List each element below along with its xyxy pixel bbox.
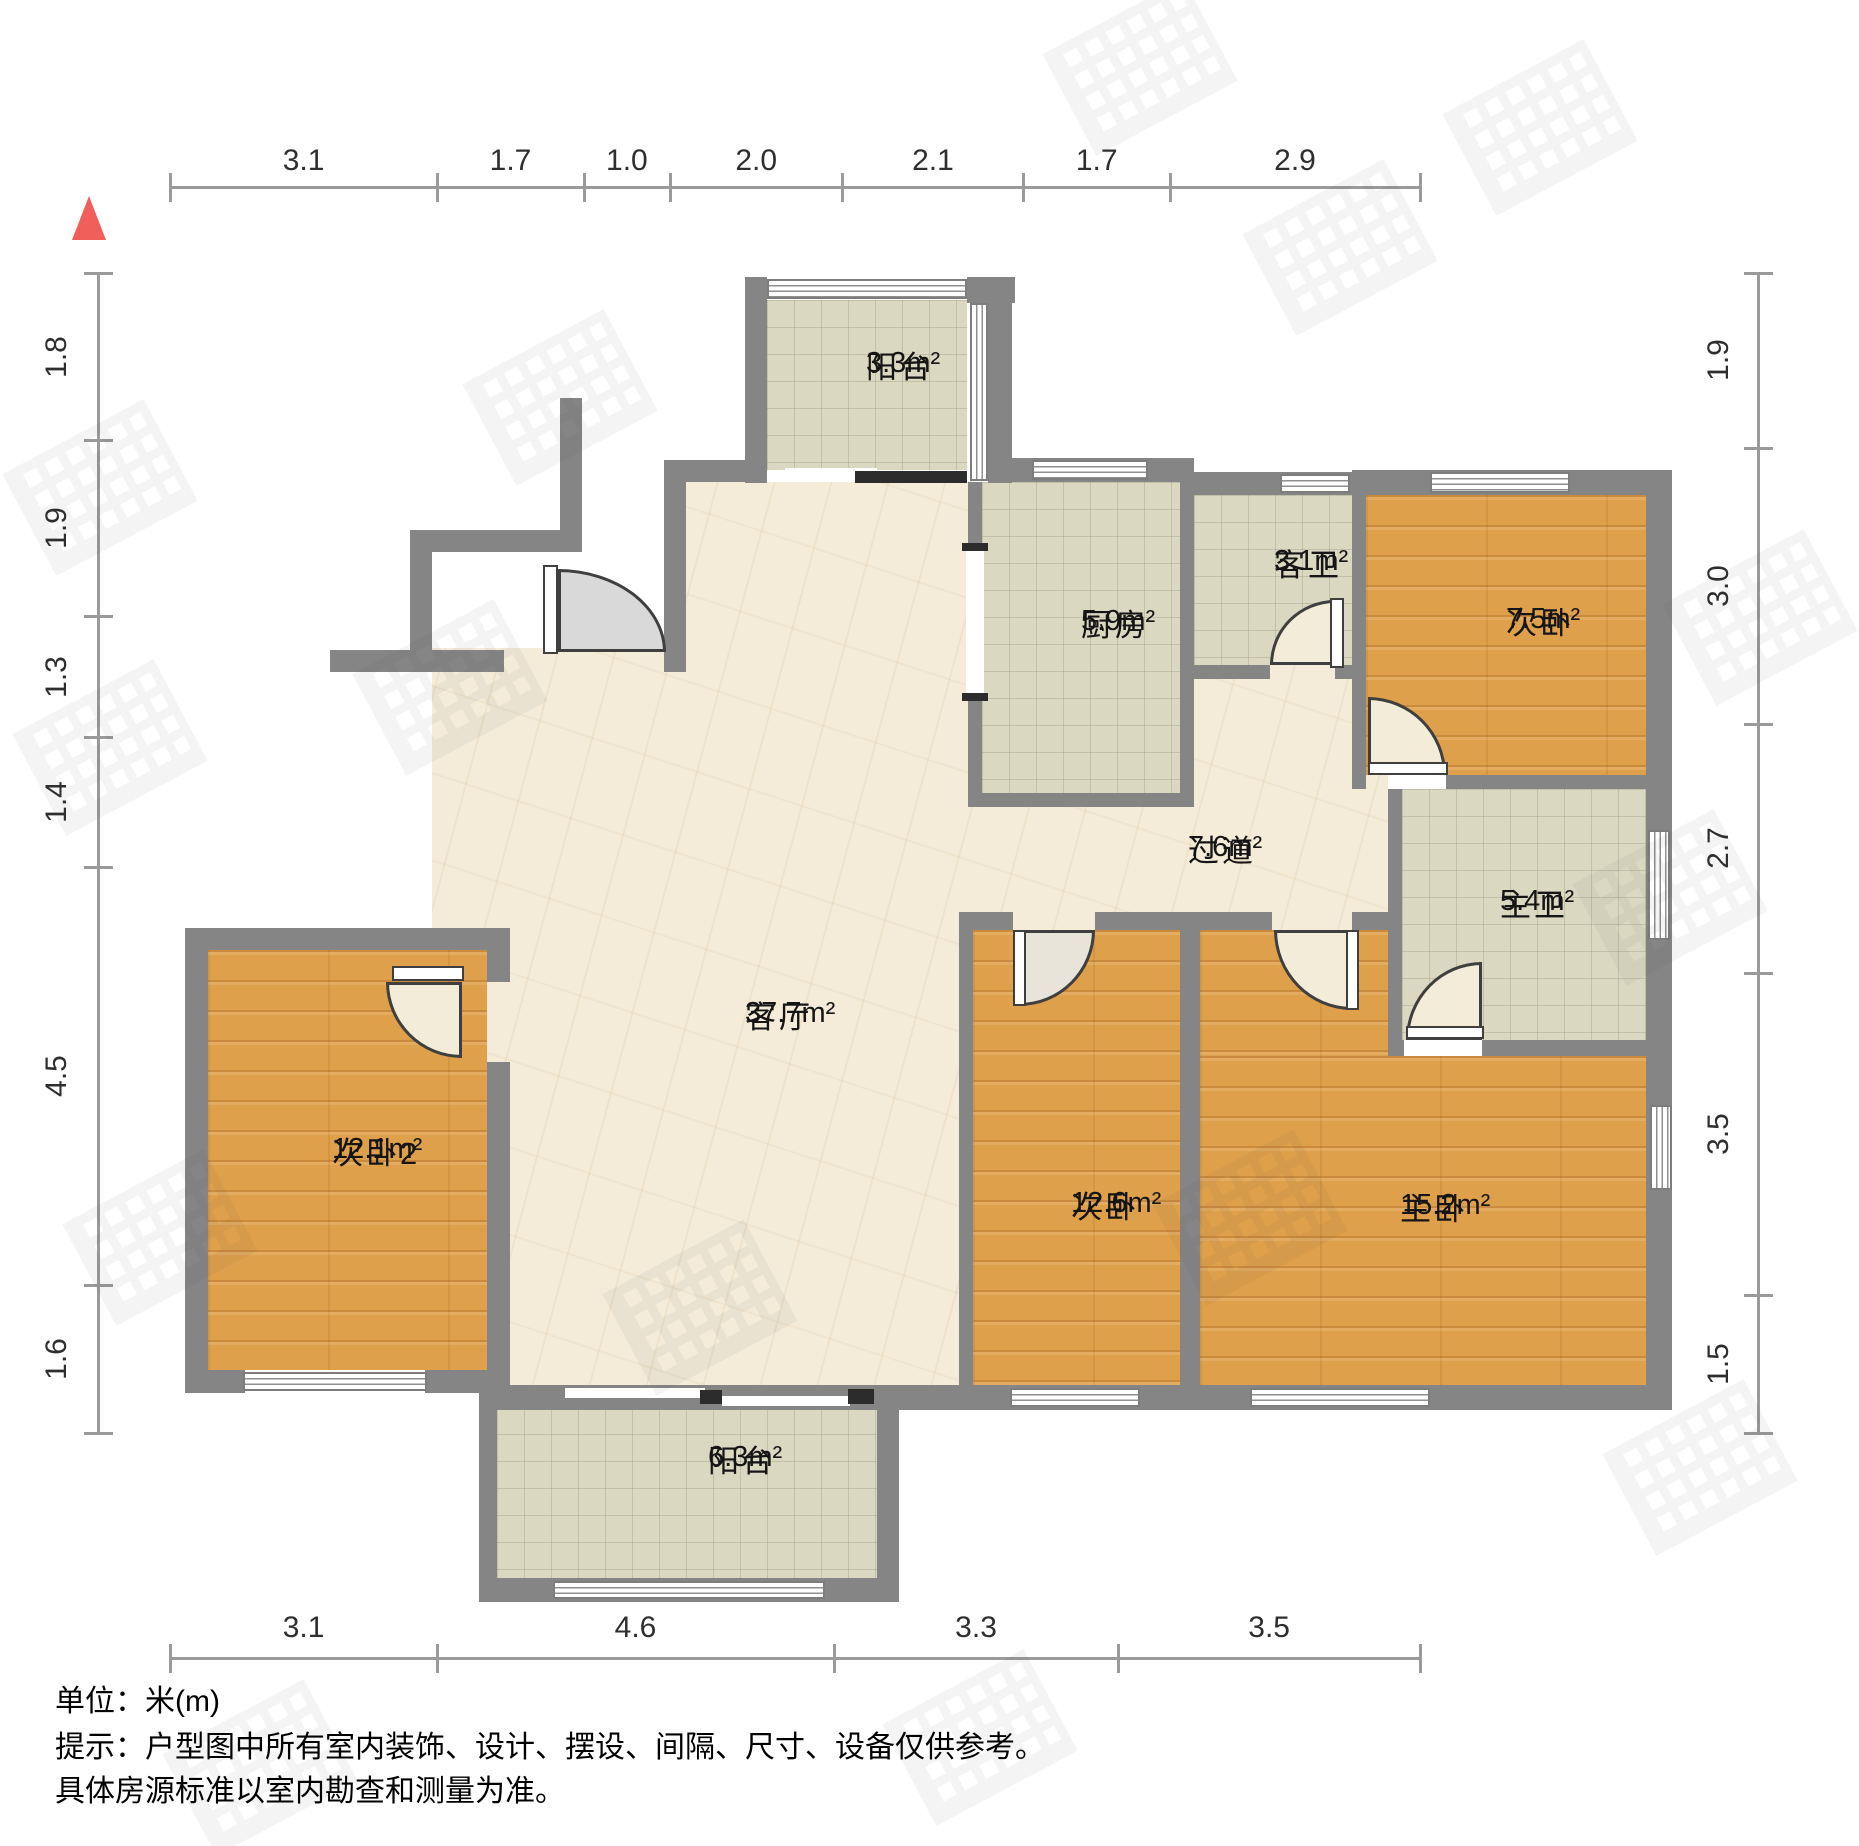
dim-label: 3.1 (283, 144, 325, 178)
sliding-door-bar (962, 693, 988, 701)
window (243, 1372, 427, 1391)
room-area: 15.2m² (1400, 1189, 1490, 1222)
wall (1194, 665, 1270, 679)
wall (973, 912, 1013, 930)
dim-tick (1744, 972, 1773, 975)
dim-label: 3.3 (955, 1611, 997, 1645)
dim-tick (1419, 173, 1422, 202)
watermark (882, 1649, 1077, 1826)
wall (664, 460, 686, 672)
dim-tick (436, 1644, 439, 1673)
dim-tick (169, 1644, 172, 1673)
dim-tick (1117, 1644, 1120, 1673)
wall (1180, 458, 1194, 793)
dim-label: 1.5 (1702, 1343, 1736, 1385)
dim-label: 1.3 (40, 656, 74, 698)
dim-label: 3.1 (283, 1611, 325, 1645)
room-area: 7.6m² (1188, 831, 1262, 864)
room-area: 5.9m² (1081, 605, 1155, 638)
watermark (2, 399, 197, 576)
wall (877, 1410, 899, 1602)
dim-tick (169, 173, 172, 202)
door-leaf (1346, 930, 1359, 1010)
wall (967, 277, 1015, 303)
dim-tick (669, 173, 672, 202)
dim-tick (84, 615, 113, 618)
unit-note: 单位：米(m) (55, 1676, 220, 1720)
dim-label: 1.0 (606, 144, 648, 178)
room-area: 3.3m² (866, 347, 940, 380)
dim-tick (84, 866, 113, 869)
dim-tick (583, 173, 586, 202)
door-leaf (1406, 1026, 1484, 1039)
wall (988, 303, 1012, 483)
room-floor (973, 930, 1180, 1385)
sliding-door-bar (565, 1388, 705, 1398)
dim-line-bottom (170, 1657, 1420, 1660)
room-floor (497, 1407, 877, 1578)
dim-tick (84, 272, 113, 275)
room-area: 7.5m² (1506, 603, 1580, 636)
dim-label: 3.5 (1702, 1113, 1736, 1155)
dim-label: 2.1 (912, 144, 954, 178)
sliding-door-bar (722, 1396, 850, 1406)
dim-tick (1744, 723, 1773, 726)
dim-tick (841, 173, 844, 202)
dim-tick (1744, 447, 1773, 450)
window (1032, 460, 1148, 480)
dim-label: 2.0 (735, 144, 777, 178)
window (553, 1581, 825, 1599)
door-leaf (1013, 930, 1026, 1006)
wall (968, 700, 982, 793)
dim-tick (1744, 1294, 1773, 1297)
sliding-door-bar (848, 1389, 874, 1404)
dim-tick (1744, 272, 1773, 275)
dim-label: 1.9 (1702, 340, 1736, 382)
wall (479, 1393, 497, 1602)
wall (959, 912, 973, 1385)
window (1010, 1388, 1140, 1407)
room-area: 12.6m² (1071, 1187, 1161, 1220)
wall (487, 950, 510, 982)
window (1650, 1105, 1672, 1190)
room-area: 12.1m² (332, 1133, 422, 1166)
window (1430, 472, 1570, 493)
sliding-door-bar (700, 1390, 722, 1404)
floor-plan: 单位：米(m) 提示：户型图中所有室内装饰、设计、摆设、间隔、尺寸、设备仅供参考… (0, 0, 1859, 1846)
door-leaf (1368, 762, 1448, 775)
dim-label: 1.8 (40, 336, 74, 378)
sliding-door-bar (962, 543, 988, 551)
wall (968, 482, 982, 550)
dim-label: 3.5 (1248, 1611, 1290, 1645)
north-indicator-icon (72, 196, 106, 240)
room-area: 37.7m² (745, 997, 835, 1030)
dim-tick (84, 1432, 113, 1435)
dim-tick (1169, 173, 1172, 202)
window (767, 279, 967, 299)
wall (1095, 912, 1180, 930)
watermark (1442, 39, 1637, 216)
wall (1388, 1040, 1404, 1056)
dim-label: 1.6 (40, 1338, 74, 1380)
wall (1352, 912, 1388, 930)
door-leaf (1330, 598, 1344, 668)
dim-label: 1.7 (490, 144, 532, 178)
window (1250, 1388, 1430, 1407)
dim-label: 4.6 (615, 1611, 657, 1645)
watermark (1042, 0, 1237, 156)
sliding-door-bar (966, 551, 984, 693)
wall (410, 530, 582, 552)
wall (1180, 912, 1200, 1385)
door-leaf (392, 966, 464, 981)
dim-label: 2.9 (1274, 144, 1316, 178)
watermark (1662, 529, 1857, 706)
dim-tick (436, 173, 439, 202)
window (1280, 474, 1350, 493)
wall (487, 1062, 510, 1385)
window (970, 303, 988, 481)
dim-line-top (170, 186, 1420, 189)
wall (1352, 775, 1366, 789)
wall (1482, 1040, 1672, 1056)
room-area: 3.1m² (1274, 545, 1348, 578)
wall (968, 793, 1194, 807)
dim-tick (833, 1644, 836, 1673)
dim-tick (1022, 173, 1025, 202)
wall (185, 928, 510, 950)
room-area: 5.4m² (1500, 885, 1574, 918)
wall (185, 1370, 245, 1393)
door-leaf (543, 565, 558, 654)
sliding-door-bar (855, 471, 967, 483)
wall (1388, 789, 1402, 1056)
dim-tick (1419, 1644, 1422, 1673)
wall (1446, 775, 1672, 789)
wall (1352, 470, 1366, 789)
room-area: 6.3m² (708, 1441, 782, 1474)
wall (745, 277, 767, 483)
dim-label: 4.5 (40, 1055, 74, 1097)
